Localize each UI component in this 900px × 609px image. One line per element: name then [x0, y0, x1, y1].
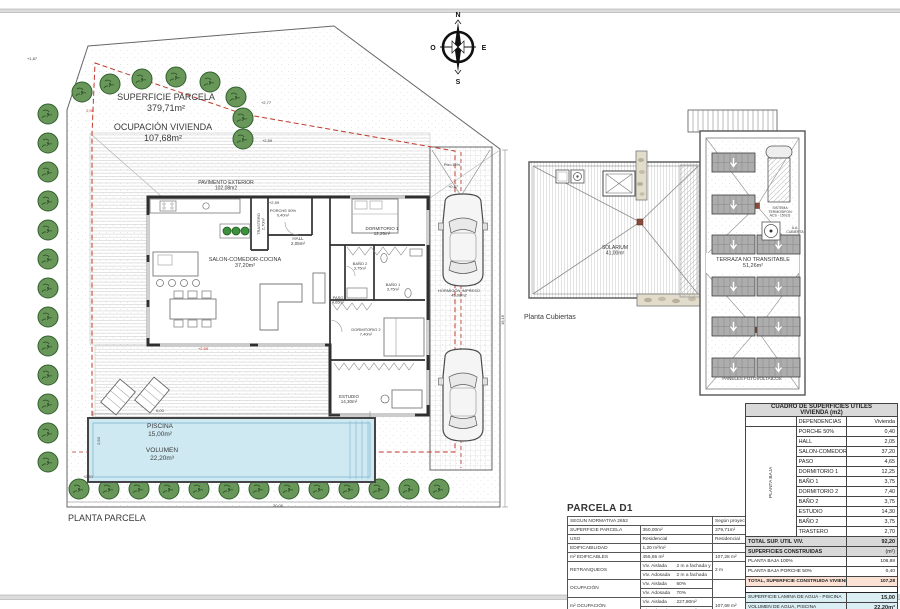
table-row: DEPENDENCIASVivienda — [746, 417, 898, 427]
plan-label: BAÑO 13,75m² — [386, 282, 401, 292]
ac-unit — [762, 222, 780, 240]
plan-label: BAÑO 23,75m² — [353, 261, 368, 271]
total-util-row: TOTAL SUP. UTIL VIV.92,20 — [746, 537, 898, 547]
blueprint-sheet: SUPERFICIE PARCELA379,71m²OCUPACIÓN VIVI… — [0, 0, 900, 609]
agua-row: VOLUMEN DE AGUA, PISCINA22,20m³ — [746, 603, 898, 609]
car-1 — [439, 194, 488, 286]
cuadro-superficies-table: CUADRO DE SUPERFICIES UTILESVIVIENDA (m2… — [745, 403, 898, 609]
parcela-table: SEGUN NORMATIVA 2652Según proyectoSUPERF… — [567, 516, 756, 609]
plan-label: VOLUMEN22,20m³ — [146, 447, 178, 462]
roof-plan — [529, 110, 805, 395]
dimension-label: 2,98 — [86, 108, 95, 113]
compass-o-label: O — [430, 45, 436, 52]
thermosiphon-unit — [766, 146, 792, 202]
plan-label: Planta Cubiertas — [524, 314, 576, 321]
pool — [72, 418, 375, 482]
col-vivienda: Vivienda — [847, 417, 898, 427]
normativa-header: SEGUN NORMATIVA 2652 — [568, 517, 713, 526]
dimension-label: 20,00 — [273, 503, 284, 508]
col-dependencias: DEPENDENCIAS — [796, 417, 847, 427]
plan-label: PANELES FOTOVOLTAICOS — [722, 376, 781, 381]
compass-e-label: E — [482, 45, 487, 52]
table-row: CUADRO DE SUPERFICIES UTILESVIVIENDA (m2… — [746, 404, 898, 417]
table-row: EDIFICABILIDAD1,20 m²/m² — [568, 544, 756, 553]
plan-label: PASO4,65m² — [332, 295, 345, 305]
planta-baja-label: PLANTA BAJA — [746, 427, 797, 537]
table-row: m² EDIFICABLES455,65 m²107,28 m² — [568, 553, 756, 562]
table-row: OCUPACIÓNViv. Aislada60% — [568, 580, 756, 589]
table-row: PLANTA BAJAPORCHE 50%0,40 — [746, 427, 898, 437]
parcela-table-block: PARCELA D1 SEGUN NORMATIVA 2652Según pro… — [567, 503, 756, 609]
table-row: SUPERFICIE PARCELA350,00m²379,71m² — [568, 526, 756, 535]
cuadro-table-block: CUADRO DE SUPERFICIES UTILESVIVIENDA (m2… — [745, 403, 898, 609]
car-2 — [439, 349, 488, 441]
deck-terrace — [95, 345, 330, 418]
plan-label: PISCINA15,00m² — [147, 423, 174, 438]
agua-row: SUPERFICIE LAMINA DE AGUA - PISCINA15,00 — [746, 593, 898, 603]
table-row: m² OCUPACIÓNViv. Aislada227,80m²107,68 m… — [568, 598, 756, 607]
dimension-label: +2,59 — [269, 200, 280, 205]
table-row: SUPERFICIES CONSTRUIDAS(m²) — [746, 547, 898, 557]
dimension-label: 16,16 — [500, 314, 505, 325]
dimension-label: +2,77 — [261, 100, 272, 105]
plan-label: ESTUDIO14,30m² — [339, 394, 360, 404]
table-row: RETRANQUEOSViv. Aislada2 m a fachada y l… — [568, 562, 756, 571]
plan-label: SOLARIUM41,00m² — [602, 245, 628, 257]
compass-s-label: S — [456, 79, 461, 86]
compass-n-label: N — [455, 12, 460, 19]
parcela-table-title: PARCELA D1 — [567, 503, 756, 514]
site-plan — [38, 26, 508, 507]
total-construida-row: TOTAL, SUPERFICIE CONSTRUIDA VIVIENDA107… — [746, 577, 898, 587]
compass-rose — [440, 20, 476, 74]
table-row: PLANTA BAJA 100%106,88 — [746, 557, 898, 567]
dimension-label: +0,87 — [448, 184, 459, 189]
table-row: USOResidencialResidencial — [568, 535, 756, 544]
table-row: SEGUN NORMATIVA 2652Según proyecto — [568, 517, 756, 526]
plan-label: HALL2,05m² — [291, 236, 306, 246]
dimension-label: 2,50 — [96, 436, 101, 445]
dimension-label: Pte=16% — [444, 162, 461, 167]
dimension-label: +2,59 — [262, 138, 273, 143]
dimension-label: +1,87 — [27, 56, 38, 61]
table-row: PLANTA BAJA PORCHE 50%0,40 — [746, 567, 898, 577]
dimension-label: +2,59 — [198, 346, 209, 351]
dimension-label: +2,51 — [83, 474, 94, 479]
plan-label: PLANTA PARCELA — [68, 513, 146, 523]
dimension-label: 6,00 — [156, 408, 165, 413]
